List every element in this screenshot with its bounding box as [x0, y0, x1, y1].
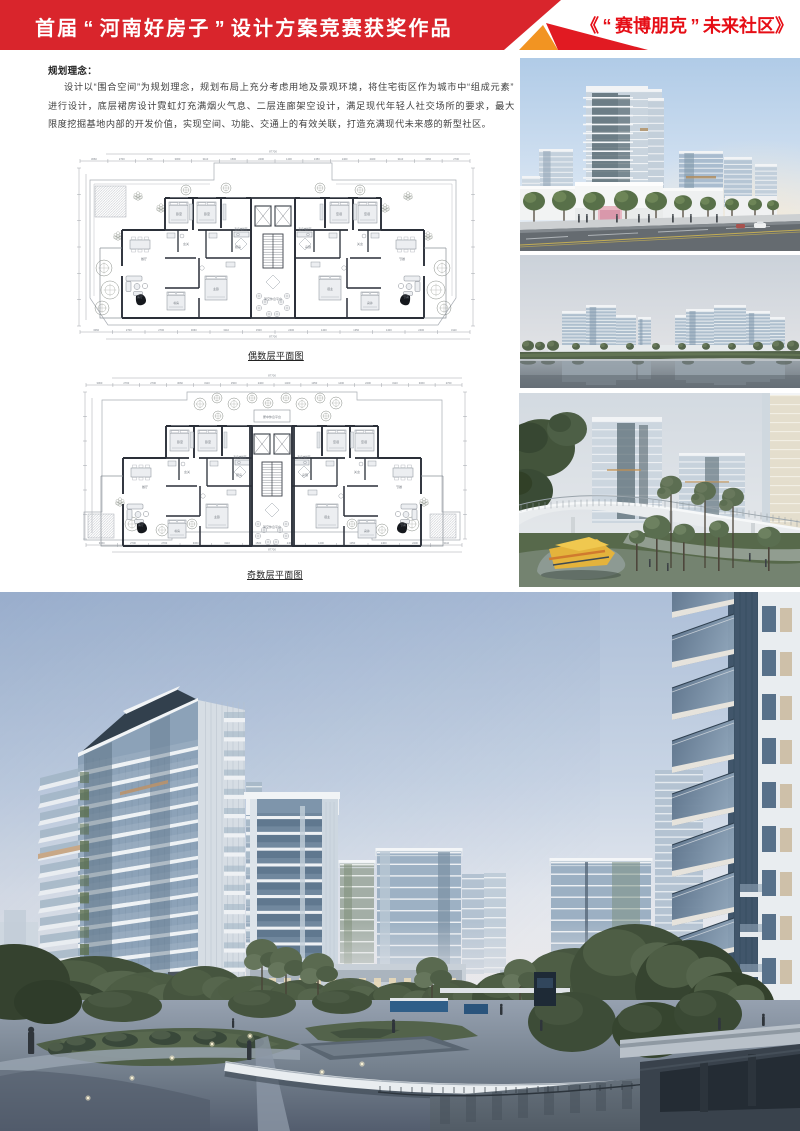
svg-text:书房: 书房: [173, 300, 179, 305]
svg-text:3060: 3060: [97, 381, 103, 385]
svg-text:3060: 3060: [419, 381, 425, 385]
svg-text:卧室: 卧室: [204, 211, 210, 216]
svg-text:书房: 书房: [174, 528, 180, 533]
svg-text:2400: 2400: [412, 541, 418, 545]
svg-text:卧室: 卧室: [364, 211, 370, 216]
svg-text:主卧: 主卧: [327, 286, 333, 291]
svg-text:玄关: 玄关: [184, 469, 190, 474]
svg-text:客厅: 客厅: [400, 522, 406, 527]
svg-text:1350: 1350: [349, 541, 355, 545]
svg-text:卧室: 卧室: [205, 439, 211, 444]
svg-text:3060: 3060: [177, 381, 183, 385]
svg-text:3110: 3110: [444, 541, 450, 545]
svg-text:私家电梯厅: 私家电梯厅: [298, 455, 311, 459]
svg-text:卧室: 卧室: [333, 439, 339, 444]
svg-text:1500: 1500: [255, 541, 261, 545]
svg-text:1400: 1400: [318, 541, 324, 545]
svg-text:卧室: 卧室: [176, 211, 182, 216]
svg-text:书房: 书房: [367, 300, 373, 305]
svg-text:主卧: 主卧: [214, 514, 220, 519]
svg-text:主卧: 主卧: [213, 286, 219, 291]
svg-text:2400: 2400: [365, 381, 371, 385]
svg-text:书房: 书房: [364, 528, 370, 533]
svg-text:厨房: 厨房: [236, 472, 242, 477]
svg-text:3060: 3060: [193, 541, 199, 545]
svg-text:3060: 3060: [425, 157, 431, 161]
svg-text:2700: 2700: [453, 157, 459, 161]
svg-text:2700: 2700: [130, 541, 136, 545]
svg-text:3110: 3110: [224, 541, 230, 545]
svg-text:2400: 2400: [258, 157, 264, 161]
svg-text:私家电梯厅: 私家电梯厅: [234, 455, 247, 459]
svg-text:玄关: 玄关: [354, 469, 360, 474]
svg-text:3110: 3110: [204, 381, 210, 385]
svg-text:3060: 3060: [191, 328, 197, 332]
svg-text:87700: 87700: [269, 150, 277, 154]
svg-text:私家电梯厅: 私家电梯厅: [299, 227, 312, 231]
svg-text:87700: 87700: [269, 335, 277, 339]
svg-text:2700: 2700: [126, 328, 132, 332]
svg-text:屋中休息平台: 屋中休息平台: [263, 414, 281, 419]
svg-text:1500: 1500: [231, 381, 237, 385]
svg-text:2400: 2400: [418, 328, 424, 332]
svg-text:1400: 1400: [381, 541, 387, 545]
svg-text:1400: 1400: [286, 157, 292, 161]
svg-text:玄关: 玄关: [357, 241, 363, 246]
svg-text:1500: 1500: [230, 157, 236, 161]
svg-text:1400: 1400: [321, 328, 327, 332]
svg-text:客厅: 客厅: [403, 294, 409, 299]
svg-text:1400: 1400: [386, 328, 392, 332]
svg-text:主卧: 主卧: [324, 514, 330, 519]
svg-text:1400: 1400: [338, 381, 344, 385]
svg-text:1400: 1400: [342, 157, 348, 161]
svg-text:1350: 1350: [314, 157, 320, 161]
svg-text:3110: 3110: [223, 328, 229, 332]
svg-text:2700: 2700: [446, 381, 452, 385]
svg-text:1350: 1350: [353, 328, 359, 332]
svg-text:3110: 3110: [392, 381, 398, 385]
svg-text:2700: 2700: [161, 541, 167, 545]
svg-text:3110: 3110: [203, 157, 209, 161]
svg-text:客厅: 客厅: [137, 294, 143, 299]
svg-text:厨房: 厨房: [302, 472, 308, 477]
svg-text:2700: 2700: [147, 157, 153, 161]
svg-text:1400: 1400: [285, 381, 291, 385]
svg-text:卧室: 卧室: [361, 439, 367, 444]
svg-text:1500: 1500: [256, 328, 262, 332]
svg-text:餐厅: 餐厅: [396, 484, 402, 489]
svg-text:玄关: 玄关: [183, 241, 189, 246]
svg-text:3060: 3060: [91, 157, 97, 161]
svg-text:2700: 2700: [158, 328, 164, 332]
svg-text:3060: 3060: [99, 541, 105, 545]
svg-text:2400: 2400: [258, 381, 264, 385]
svg-text:1350: 1350: [311, 381, 317, 385]
svg-text:客厅: 客厅: [138, 522, 144, 527]
svg-text:87700: 87700: [268, 548, 276, 552]
svg-text:餐厅: 餐厅: [399, 256, 405, 261]
svg-text:餐厅: 餐厅: [141, 256, 147, 261]
svg-text:餐厅: 餐厅: [142, 484, 148, 489]
svg-text:2700: 2700: [119, 157, 125, 161]
svg-text:2400: 2400: [370, 157, 376, 161]
svg-text:2700: 2700: [123, 381, 129, 385]
svg-text:卧室: 卧室: [177, 439, 183, 444]
svg-text:3110: 3110: [451, 328, 457, 332]
svg-text:2700: 2700: [150, 381, 156, 385]
svg-text:卧室: 卧室: [336, 211, 342, 216]
svg-text:87700: 87700: [268, 374, 276, 378]
svg-text:2400: 2400: [288, 328, 294, 332]
svg-text:3060: 3060: [175, 157, 181, 161]
svg-text:私家电梯厅: 私家电梯厅: [235, 227, 248, 231]
svg-text:3110: 3110: [398, 157, 404, 161]
svg-text:3060: 3060: [93, 328, 99, 332]
